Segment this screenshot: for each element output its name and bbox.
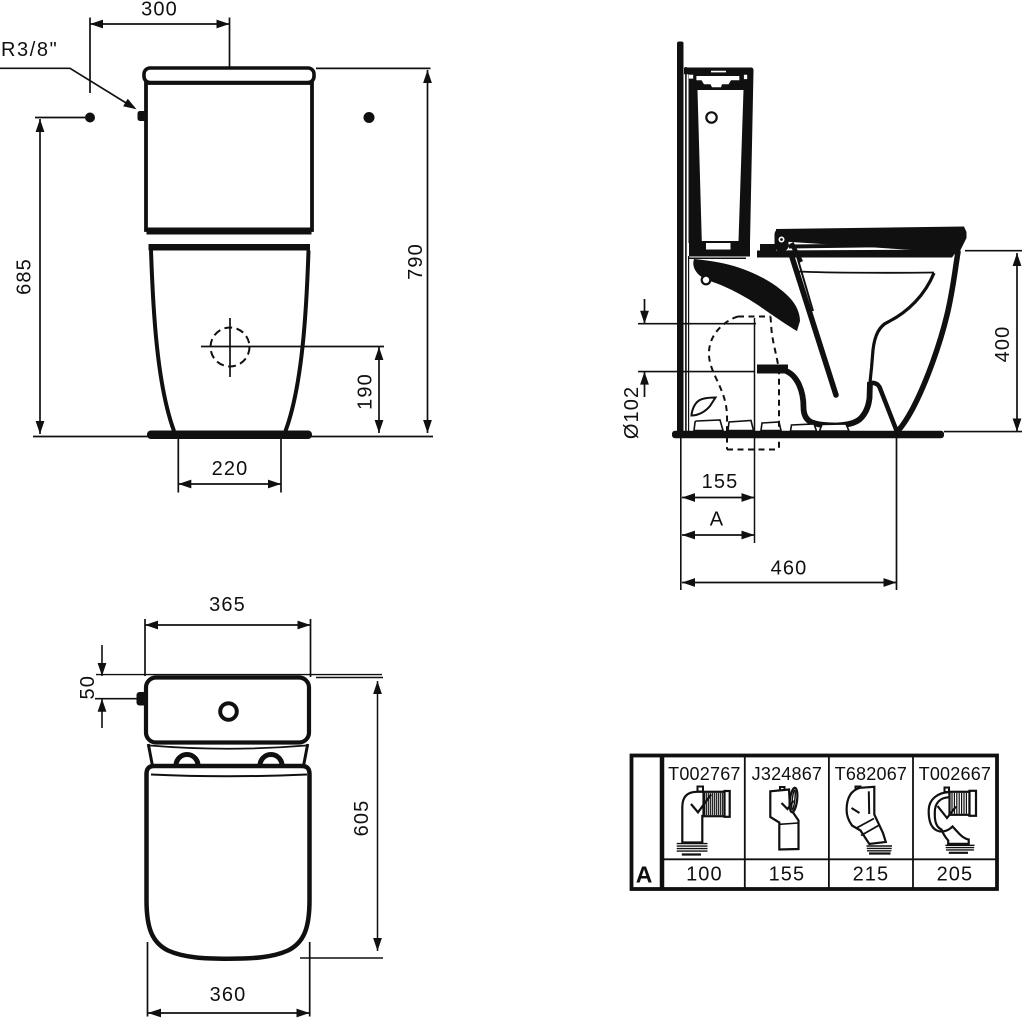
svg-text:605: 605 xyxy=(351,800,373,837)
svg-text:190: 190 xyxy=(355,373,377,410)
svg-text:155: 155 xyxy=(769,864,806,886)
svg-text:J324867: J324867 xyxy=(752,764,822,784)
svg-text:400: 400 xyxy=(992,326,1014,363)
svg-text:50: 50 xyxy=(77,675,99,699)
svg-text:100: 100 xyxy=(686,864,723,886)
svg-text:T002667: T002667 xyxy=(919,764,991,784)
svg-text:365: 365 xyxy=(209,594,246,616)
svg-text:T002767: T002767 xyxy=(668,764,740,784)
svg-text:460: 460 xyxy=(771,558,808,580)
svg-text:155: 155 xyxy=(702,471,739,493)
svg-text:A: A xyxy=(636,862,653,888)
svg-text:685: 685 xyxy=(14,258,36,295)
svg-text:790: 790 xyxy=(405,243,427,280)
svg-text:T682067: T682067 xyxy=(835,764,907,784)
svg-text:360: 360 xyxy=(210,984,247,1006)
svg-text:R3/8": R3/8" xyxy=(1,39,58,61)
svg-text:220: 220 xyxy=(212,458,249,480)
svg-text:A: A xyxy=(710,509,724,531)
svg-text:215: 215 xyxy=(853,864,890,886)
svg-text:300: 300 xyxy=(141,0,178,21)
svg-text:205: 205 xyxy=(937,864,974,886)
svg-text:Ø102: Ø102 xyxy=(621,386,643,439)
